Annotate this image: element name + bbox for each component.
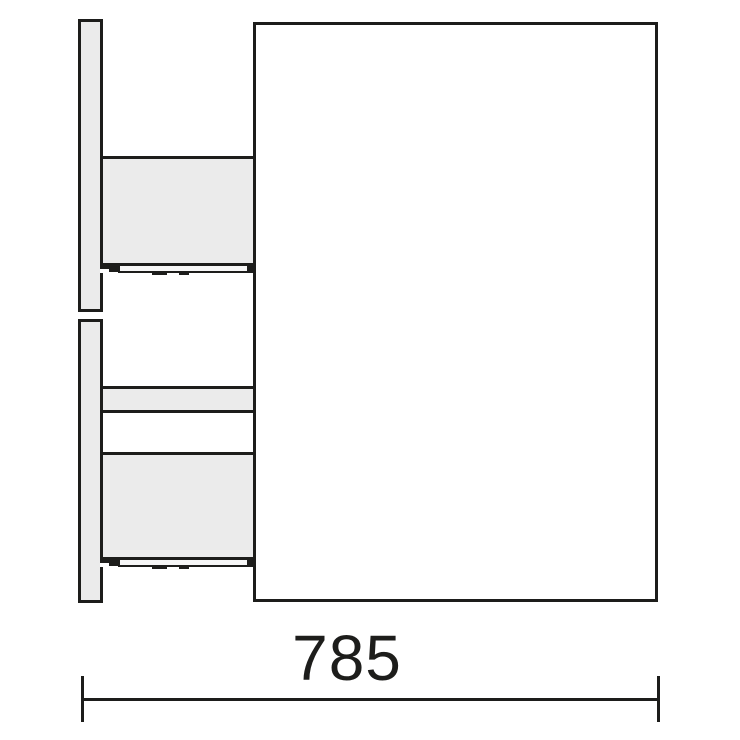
slide-bracket-notch-upper — [100, 269, 109, 273]
dimension-line — [82, 698, 659, 701]
slide-bracket-notch-lower — [100, 563, 109, 567]
dimension-tick-left — [81, 676, 84, 722]
cabinet-carcass — [253, 22, 658, 602]
drawer-front-upper — [100, 156, 256, 266]
drawer-front-lower — [100, 452, 256, 560]
slide-tick-lower-1 — [152, 566, 167, 569]
cross-rail — [100, 386, 256, 413]
slide-tick-lower-2 — [179, 566, 189, 569]
slide-tick-upper-2 — [179, 272, 189, 275]
dimension-tick-right — [657, 676, 660, 722]
dimension-label: 785 — [247, 626, 447, 690]
slide-tick-upper-1 — [152, 272, 167, 275]
technical-drawing-canvas: 785 — [0, 0, 740, 740]
